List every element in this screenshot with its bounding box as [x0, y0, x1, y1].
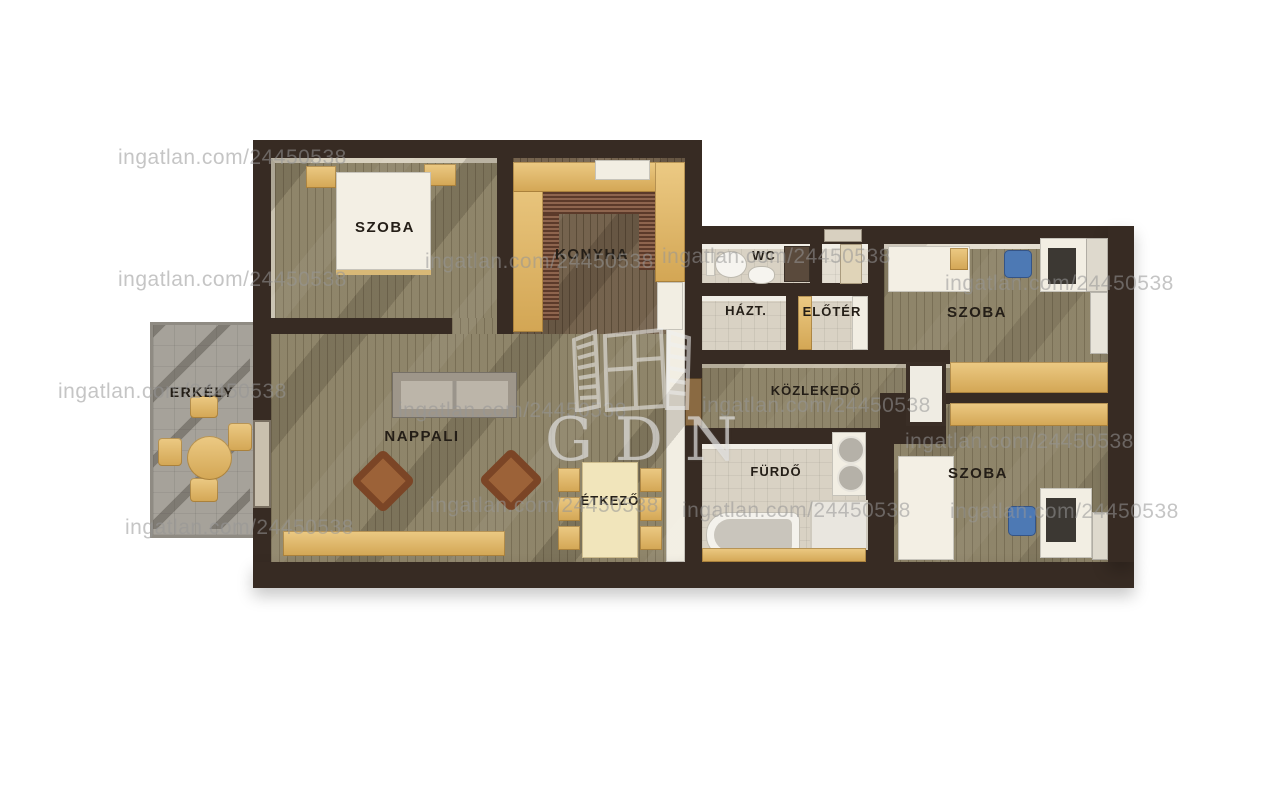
- room-label-hazt: HÁZT.: [704, 303, 788, 318]
- bedroom1-nightstand: [306, 166, 336, 188]
- wall: [1108, 226, 1134, 562]
- dining-chair: [558, 526, 580, 550]
- balcony-chair: [158, 438, 182, 466]
- bathroom-sink: [837, 464, 865, 492]
- room-label-furdo: FÜRDŐ: [736, 464, 816, 479]
- wall: [702, 283, 880, 296]
- dining-chair: [558, 468, 580, 492]
- entry-door-leaf: [840, 244, 862, 284]
- room-label-szoba-2: SZOBA: [927, 304, 1027, 321]
- room-label-erkely: ERKÉLY: [157, 384, 247, 400]
- toilet: [715, 251, 747, 278]
- room-label-konyha: KONYHA: [542, 246, 642, 263]
- sofa: [392, 372, 517, 418]
- balcony-door: [253, 420, 271, 508]
- bathroom-cabinet: [702, 548, 866, 562]
- balcony-table: [187, 436, 232, 480]
- bedroom2-pillow: [950, 248, 968, 270]
- wall: [253, 140, 700, 158]
- room-label-nappali: NAPPALI: [372, 428, 472, 445]
- kitchen-counter: [655, 162, 685, 282]
- wc-sink: [748, 266, 775, 284]
- room-label-szoba-1: SZOBA: [335, 219, 435, 236]
- bedroom2-chair: [1004, 250, 1032, 278]
- wall: [497, 158, 513, 334]
- wall: [253, 140, 271, 588]
- bedroom3-chair: [1008, 506, 1036, 536]
- dining-chair: [640, 526, 662, 550]
- bedroom2-wardrobe: [1086, 238, 1108, 292]
- kitchen-appliance: [595, 160, 650, 180]
- wall: [866, 444, 894, 562]
- wall: [685, 140, 702, 378]
- room-label-eloter: ELŐTÉR: [792, 304, 872, 319]
- bedroom3-wardrobe-band: [950, 403, 1108, 426]
- balcony-chair: [190, 478, 218, 502]
- wc-cabinet: [784, 246, 810, 282]
- hallway-door: [685, 378, 702, 426]
- dining-table: [582, 462, 638, 558]
- floorplan-canvas: SZOBA KONYHA WC HÁZT. ELŐTÉR SZOBA KÖZLE…: [0, 0, 1280, 806]
- wall: [253, 318, 452, 334]
- wall: [810, 244, 822, 283]
- bathroom-sink: [837, 436, 865, 464]
- room-label-etkezo: ÉTKEZŐ: [565, 493, 655, 508]
- toilet-tank: [706, 252, 715, 276]
- balcony-chair: [228, 423, 252, 451]
- kitchen-fridge: [657, 282, 683, 330]
- bedroom3-monitor: [1046, 498, 1076, 542]
- bedroom2-wardrobe-band: [950, 362, 1108, 393]
- bedroom2-window: [1090, 292, 1108, 354]
- shower: [810, 500, 868, 550]
- door-opening-floor: [452, 318, 497, 334]
- room-label-szoba-3: SZOBA: [928, 465, 1028, 482]
- bedroom2-monitor: [1048, 248, 1076, 284]
- bathtub-basin: [714, 519, 792, 551]
- wall: [253, 562, 1134, 588]
- bedroom3-wardrobe: [1092, 512, 1108, 560]
- wall: [685, 426, 702, 562]
- front-door: [824, 229, 862, 242]
- hallway-closet: [906, 362, 946, 426]
- room-label-kozlekedo: KÖZLEKEDŐ: [762, 383, 870, 398]
- dining-chair: [640, 468, 662, 492]
- room-label-wc: WC: [746, 248, 782, 263]
- sofa-cushions: [401, 381, 508, 409]
- sideboard: [283, 531, 505, 556]
